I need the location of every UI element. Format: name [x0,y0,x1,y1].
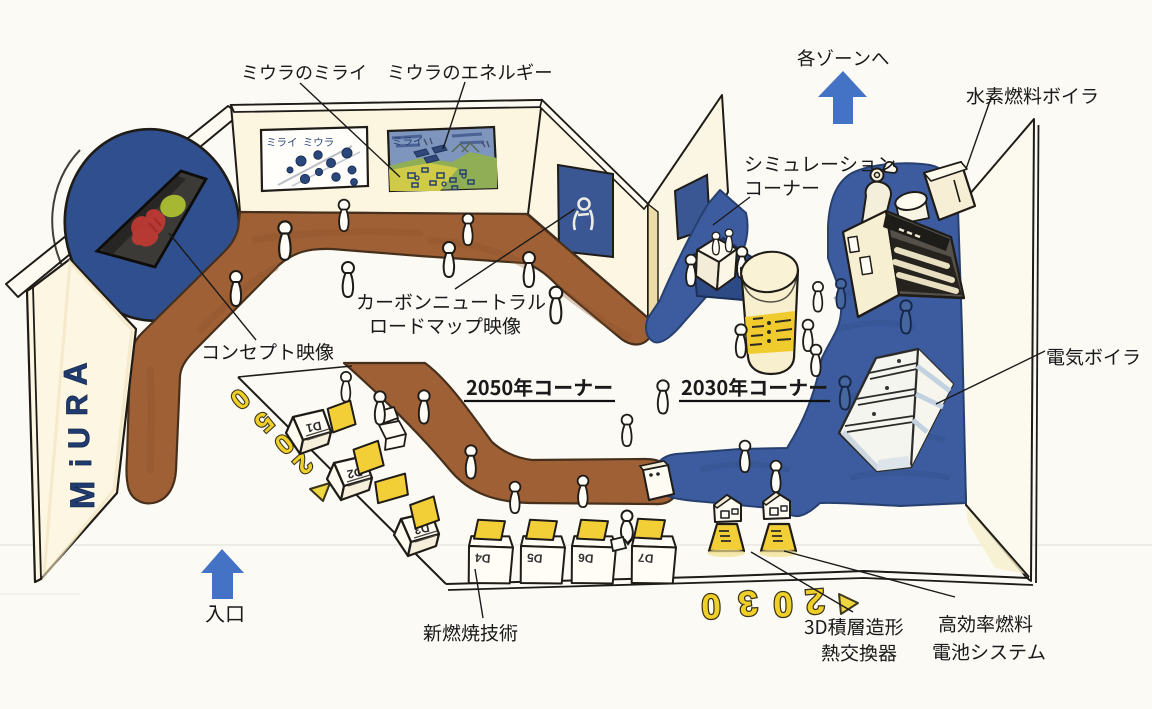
svg-text:R: R [61,394,94,416]
svg-text:A: A [57,362,93,385]
svg-text:D7: D7 [637,550,654,565]
svg-text:2: 2 [804,581,827,622]
svg-text:D6: D6 [577,550,594,565]
svg-text:D5: D5 [526,550,543,565]
svg-text:D4: D4 [474,550,491,565]
svg-text:i: i [65,459,98,467]
svg-text:0: 0 [701,586,722,626]
svg-text:M: M [64,481,102,509]
svg-text:3: 3 [736,583,759,624]
svg-text:U: U [63,427,96,449]
svg-text:0: 0 [773,584,794,624]
